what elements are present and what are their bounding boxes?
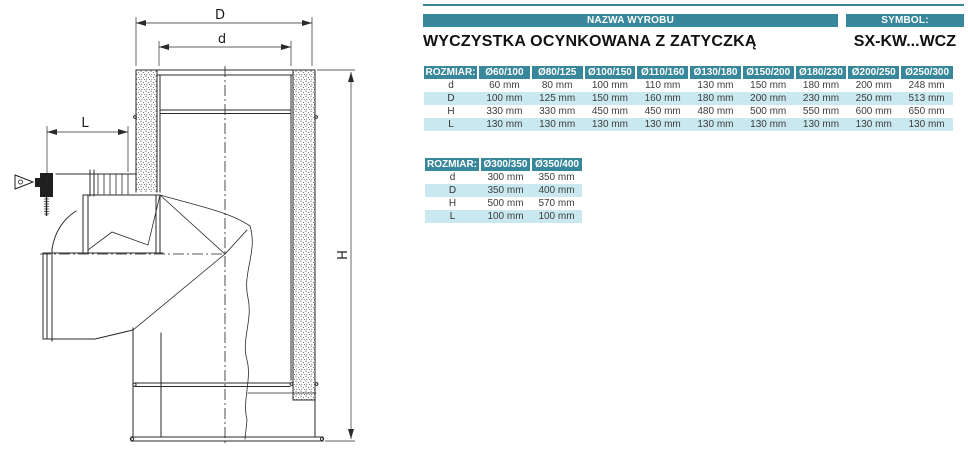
value-cell: 480 mm: [689, 105, 742, 118]
bar-gap: [838, 14, 846, 27]
diameter-column-header: Ø60/100: [478, 66, 531, 79]
value-cell: 100 mm: [531, 210, 582, 223]
value-cell: 110 mm: [636, 79, 689, 92]
diameter-column-header: Ø180/230: [795, 66, 848, 79]
value-cell: 350 mm: [480, 184, 531, 197]
value-cell: 130 mm: [689, 79, 742, 92]
table-row: D350 mm400 mm: [425, 184, 582, 197]
value-cell: 130 mm: [584, 118, 637, 131]
value-cell: 330 mm: [531, 105, 584, 118]
header-bars: NAZWA WYROBU SYMBOL:: [423, 14, 964, 27]
value-cell: 150 mm: [584, 92, 637, 105]
value-cell: 248 mm: [900, 79, 953, 92]
diameter-column-header: Ø100/150: [584, 66, 637, 79]
value-cell: 130 mm: [478, 118, 531, 131]
row-label: D: [425, 184, 480, 197]
value-cell: 125 mm: [531, 92, 584, 105]
value-cell: 130 mm: [531, 118, 584, 131]
dim-label-branch-length: L: [81, 116, 89, 131]
value-cell: 513 mm: [900, 92, 953, 105]
value-cell: 650 mm: [900, 105, 953, 118]
dim-label-inner-diameter: d: [218, 32, 226, 47]
value-cell: 250 mm: [847, 92, 900, 105]
table-row: L130 mm130 mm130 mm130 mm130 mm130 mm130…: [424, 118, 953, 131]
technical-drawing: D d L H: [0, 0, 420, 455]
insulation-hatch: [137, 71, 315, 401]
table-row: H500 mm570 mm: [425, 197, 582, 210]
value-cell: 130 mm: [900, 118, 953, 131]
value-cell: 230 mm: [795, 92, 848, 105]
title-row: WYCZYSTKA OCYNKOWANA Z ZATYCZKĄ SX-KW...…: [423, 33, 964, 51]
symbol-value: SX-KW...WCZ: [854, 33, 964, 51]
table-row: H330 mm330 mm450 mm450 mm480 mm500 mm550…: [424, 105, 953, 118]
value-cell: 450 mm: [584, 105, 637, 118]
top-divider: [423, 4, 964, 6]
value-cell: 100 mm: [478, 92, 531, 105]
value-cell: 500 mm: [742, 105, 795, 118]
value-cell: 80 mm: [531, 79, 584, 92]
value-cell: 130 mm: [636, 118, 689, 131]
value-cell: 160 mm: [636, 92, 689, 105]
diameter-column-header: Ø300/350: [480, 158, 531, 171]
spec-panel: NAZWA WYROBU SYMBOL: WYCZYSTKA OCYNKOWAN…: [423, 4, 964, 51]
value-cell: 130 mm: [795, 118, 848, 131]
diameter-column-header: Ø150/200: [742, 66, 795, 79]
diameter-column-header: Ø110/160: [636, 66, 689, 79]
table-row: d60 mm80 mm100 mm110 mm130 mm150 mm180 m…: [424, 79, 953, 92]
value-cell: 180 mm: [795, 79, 848, 92]
table-row: D100 mm125 mm150 mm160 mm180 mm200 mm230…: [424, 92, 953, 105]
value-cell: 150 mm: [742, 79, 795, 92]
spec-table: ROZMIAR:Ø60/100Ø80/125Ø100/150Ø110/160Ø1…: [424, 66, 953, 131]
row-label: D: [424, 92, 478, 105]
product-name: WYCZYSTKA OCYNKOWANA Z ZATYCZKĄ: [423, 33, 757, 51]
row-label: d: [424, 79, 478, 92]
value-cell: 550 mm: [795, 105, 848, 118]
value-cell: 570 mm: [531, 197, 582, 210]
value-cell: 200 mm: [847, 79, 900, 92]
table-row: L100 mm100 mm: [425, 210, 582, 223]
datasheet-page: D d L H NAZWA WYROBU SYMBOL: WYCZYSTKA O…: [0, 0, 968, 455]
dim-label-height: H: [333, 250, 348, 260]
row-label: L: [425, 210, 480, 223]
value-cell: 330 mm: [478, 105, 531, 118]
diameter-column-header: Ø80/125: [531, 66, 584, 79]
diameter-column-header: Ø250/300: [900, 66, 953, 79]
value-cell: 130 mm: [847, 118, 900, 131]
diameter-column-header: Ø350/400: [531, 158, 582, 171]
value-cell: 450 mm: [636, 105, 689, 118]
size-label-header: ROZMIAR:: [425, 158, 480, 171]
value-cell: 100 mm: [480, 210, 531, 223]
value-cell: 500 mm: [480, 197, 531, 210]
product-name-bar: NAZWA WYROBU: [423, 14, 838, 27]
value-cell: 350 mm: [531, 171, 582, 184]
value-cell: 130 mm: [689, 118, 742, 131]
value-cell: 600 mm: [847, 105, 900, 118]
value-cell: 300 mm: [480, 171, 531, 184]
dim-label-outer-diameter: D: [215, 8, 225, 23]
value-cell: 180 mm: [689, 92, 742, 105]
diameter-column-header: Ø200/250: [847, 66, 900, 79]
size-table-main: ROZMIAR:Ø60/100Ø80/125Ø100/150Ø110/160Ø1…: [424, 66, 953, 131]
spec-table: ROZMIAR:Ø300/350Ø350/400d300 mm350 mmD35…: [425, 158, 582, 223]
symbol-bar: SYMBOL:: [846, 14, 964, 27]
size-label-header: ROZMIAR:: [424, 66, 478, 79]
value-cell: 60 mm: [478, 79, 531, 92]
value-cell: 130 mm: [742, 118, 795, 131]
value-cell: 100 mm: [584, 79, 637, 92]
diameter-column-header: Ø130/180: [689, 66, 742, 79]
row-label: d: [425, 171, 480, 184]
size-table-large: ROZMIAR:Ø300/350Ø350/400d300 mm350 mmD35…: [425, 158, 582, 223]
value-cell: 200 mm: [742, 92, 795, 105]
row-label: L: [424, 118, 478, 131]
value-cell: 400 mm: [531, 184, 582, 197]
table-row: d300 mm350 mm: [425, 171, 582, 184]
row-label: H: [425, 197, 480, 210]
row-label: H: [424, 105, 478, 118]
